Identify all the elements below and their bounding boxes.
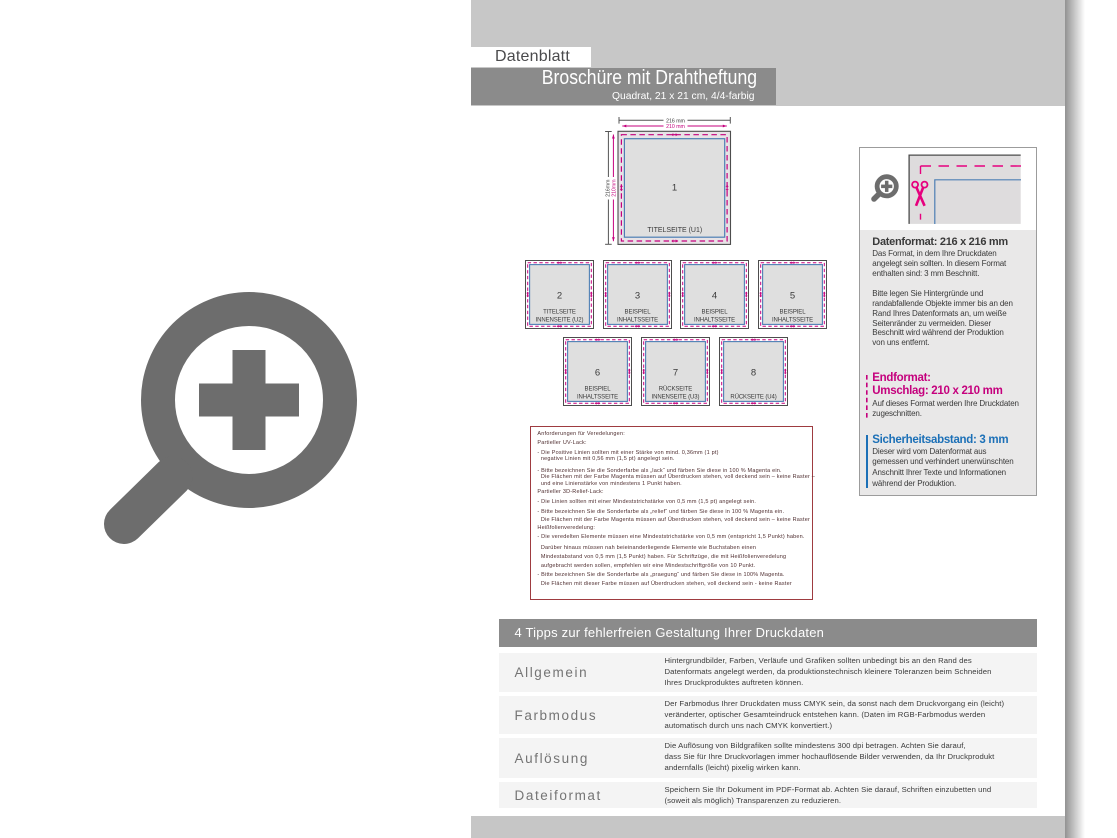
svg-text:BEISPIEL: BEISPIEL [780, 310, 807, 316]
svg-text:RÜCKSEITE (U4): RÜCKSEITE (U4) [730, 394, 776, 401]
svg-text:3: 3 [635, 290, 640, 301]
svg-text:7: 7 [673, 368, 678, 379]
svg-text:210mm: 210mm [611, 179, 617, 196]
svg-text:TITELSEITE: TITELSEITE [543, 310, 576, 316]
svg-text:6: 6 [595, 368, 600, 379]
svg-text:INNENSEITE (U2): INNENSEITE (U2) [536, 318, 584, 324]
svg-text:INHALTSSEITE: INHALTSSEITE [577, 395, 618, 401]
svg-text:4: 4 [712, 290, 717, 301]
svg-text:210 mm: 210 mm [666, 124, 685, 130]
svg-text:BEISPIEL: BEISPIEL [702, 310, 729, 316]
svg-text:INNENSEITE (U3): INNENSEITE (U3) [651, 395, 699, 401]
svg-text:RÜCKSEITE: RÜCKSEITE [659, 386, 693, 393]
svg-text:8: 8 [750, 368, 755, 379]
svg-text:INHALTSSEITE: INHALTSSEITE [617, 318, 658, 324]
svg-text:1: 1 [672, 182, 677, 193]
svg-text:5: 5 [790, 290, 795, 301]
svg-text:BEISPIEL: BEISPIEL [624, 310, 651, 316]
svg-text:INHALTSSEITE: INHALTSSEITE [694, 318, 735, 324]
svg-text:TITELSEITE (U1): TITELSEITE (U1) [647, 227, 702, 234]
svg-text:BEISPIEL: BEISPIEL [585, 387, 612, 393]
svg-text:2: 2 [557, 290, 562, 301]
svg-text:INHALTSSEITE: INHALTSSEITE [772, 318, 813, 324]
